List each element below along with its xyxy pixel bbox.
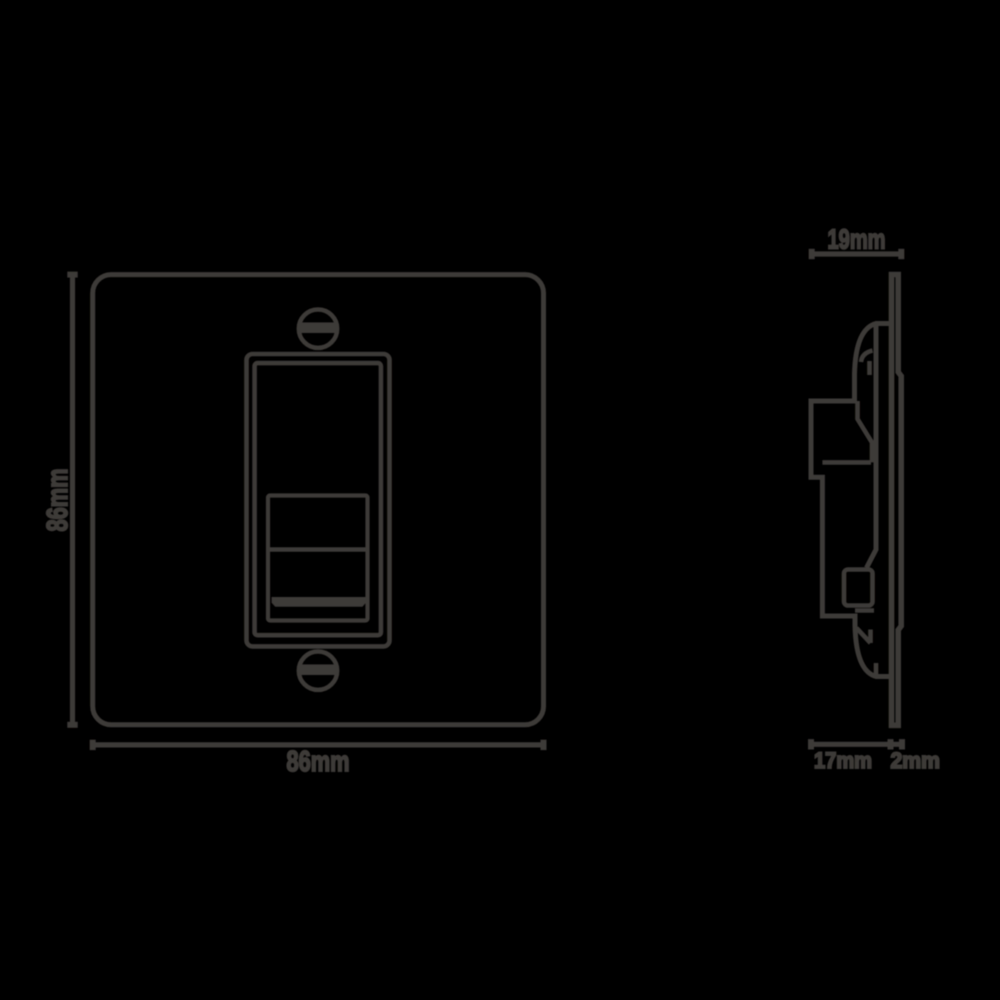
svg-text:86mm: 86mm bbox=[287, 746, 350, 778]
svg-text:17mm: 17mm bbox=[814, 748, 872, 773]
svg-text:19mm: 19mm bbox=[828, 224, 886, 255]
svg-text:2mm: 2mm bbox=[891, 748, 940, 773]
svg-text:86mm: 86mm bbox=[42, 469, 74, 532]
